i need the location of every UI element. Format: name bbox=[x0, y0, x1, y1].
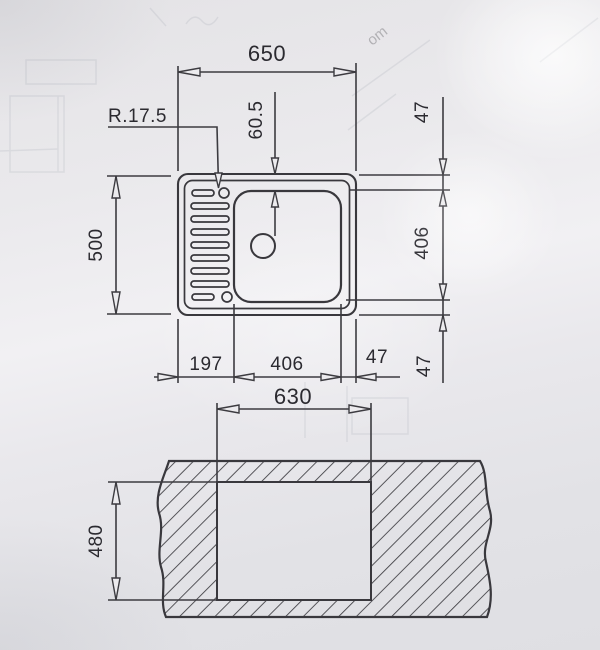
dim-right-406-label: 406 bbox=[412, 226, 433, 259]
dim-bottom-197-label: 197 bbox=[189, 354, 222, 375]
drainboard-ribs bbox=[191, 190, 229, 300]
cutout-opening bbox=[217, 482, 371, 600]
drainboard-rib bbox=[192, 190, 214, 196]
dim-bottom-406-label: 406 bbox=[270, 354, 303, 375]
plan-view: 650 R.17.5 60.5 500 47 406 47 197 406 47 bbox=[86, 41, 450, 383]
cutout-arrowheads bbox=[112, 405, 371, 600]
drain-hole bbox=[251, 234, 275, 258]
radius-callout-label: R.17.5 bbox=[108, 106, 167, 127]
worktop-hatching bbox=[140, 450, 505, 628]
drainboard-rib bbox=[191, 268, 229, 274]
drainboard-rib bbox=[191, 242, 229, 248]
sink-inner-rim bbox=[185, 181, 350, 309]
cutout-view: 630 480 bbox=[86, 384, 505, 628]
paper-photo-background: om bbox=[0, 0, 600, 650]
drainboard-rib bbox=[191, 216, 229, 222]
dim-630-label: 630 bbox=[274, 384, 312, 409]
tap-hole-top bbox=[219, 188, 229, 198]
drainboard-rib bbox=[191, 255, 229, 261]
drainboard-rib bbox=[191, 281, 229, 287]
dim-right-47-top-label: 47 bbox=[412, 101, 433, 123]
cutout-dimension-lines bbox=[108, 403, 371, 600]
ghost-text: om bbox=[364, 23, 391, 49]
tap-hole-bottom bbox=[222, 292, 232, 302]
dim-right-47-bottom-label: 47 bbox=[414, 355, 435, 377]
dim-500-label: 500 bbox=[86, 228, 107, 261]
drainboard-rib bbox=[191, 229, 229, 235]
dim-bottom-47-label: 47 bbox=[366, 347, 388, 368]
dim-650-label: 650 bbox=[248, 41, 286, 66]
drainboard-rib bbox=[192, 294, 214, 300]
sink-outline bbox=[178, 174, 356, 315]
dim-480-label: 480 bbox=[86, 524, 107, 557]
drainboard-rib bbox=[191, 203, 229, 209]
dim-60-5-label: 60.5 bbox=[246, 101, 267, 140]
sink-technical-drawing: om bbox=[0, 0, 600, 650]
